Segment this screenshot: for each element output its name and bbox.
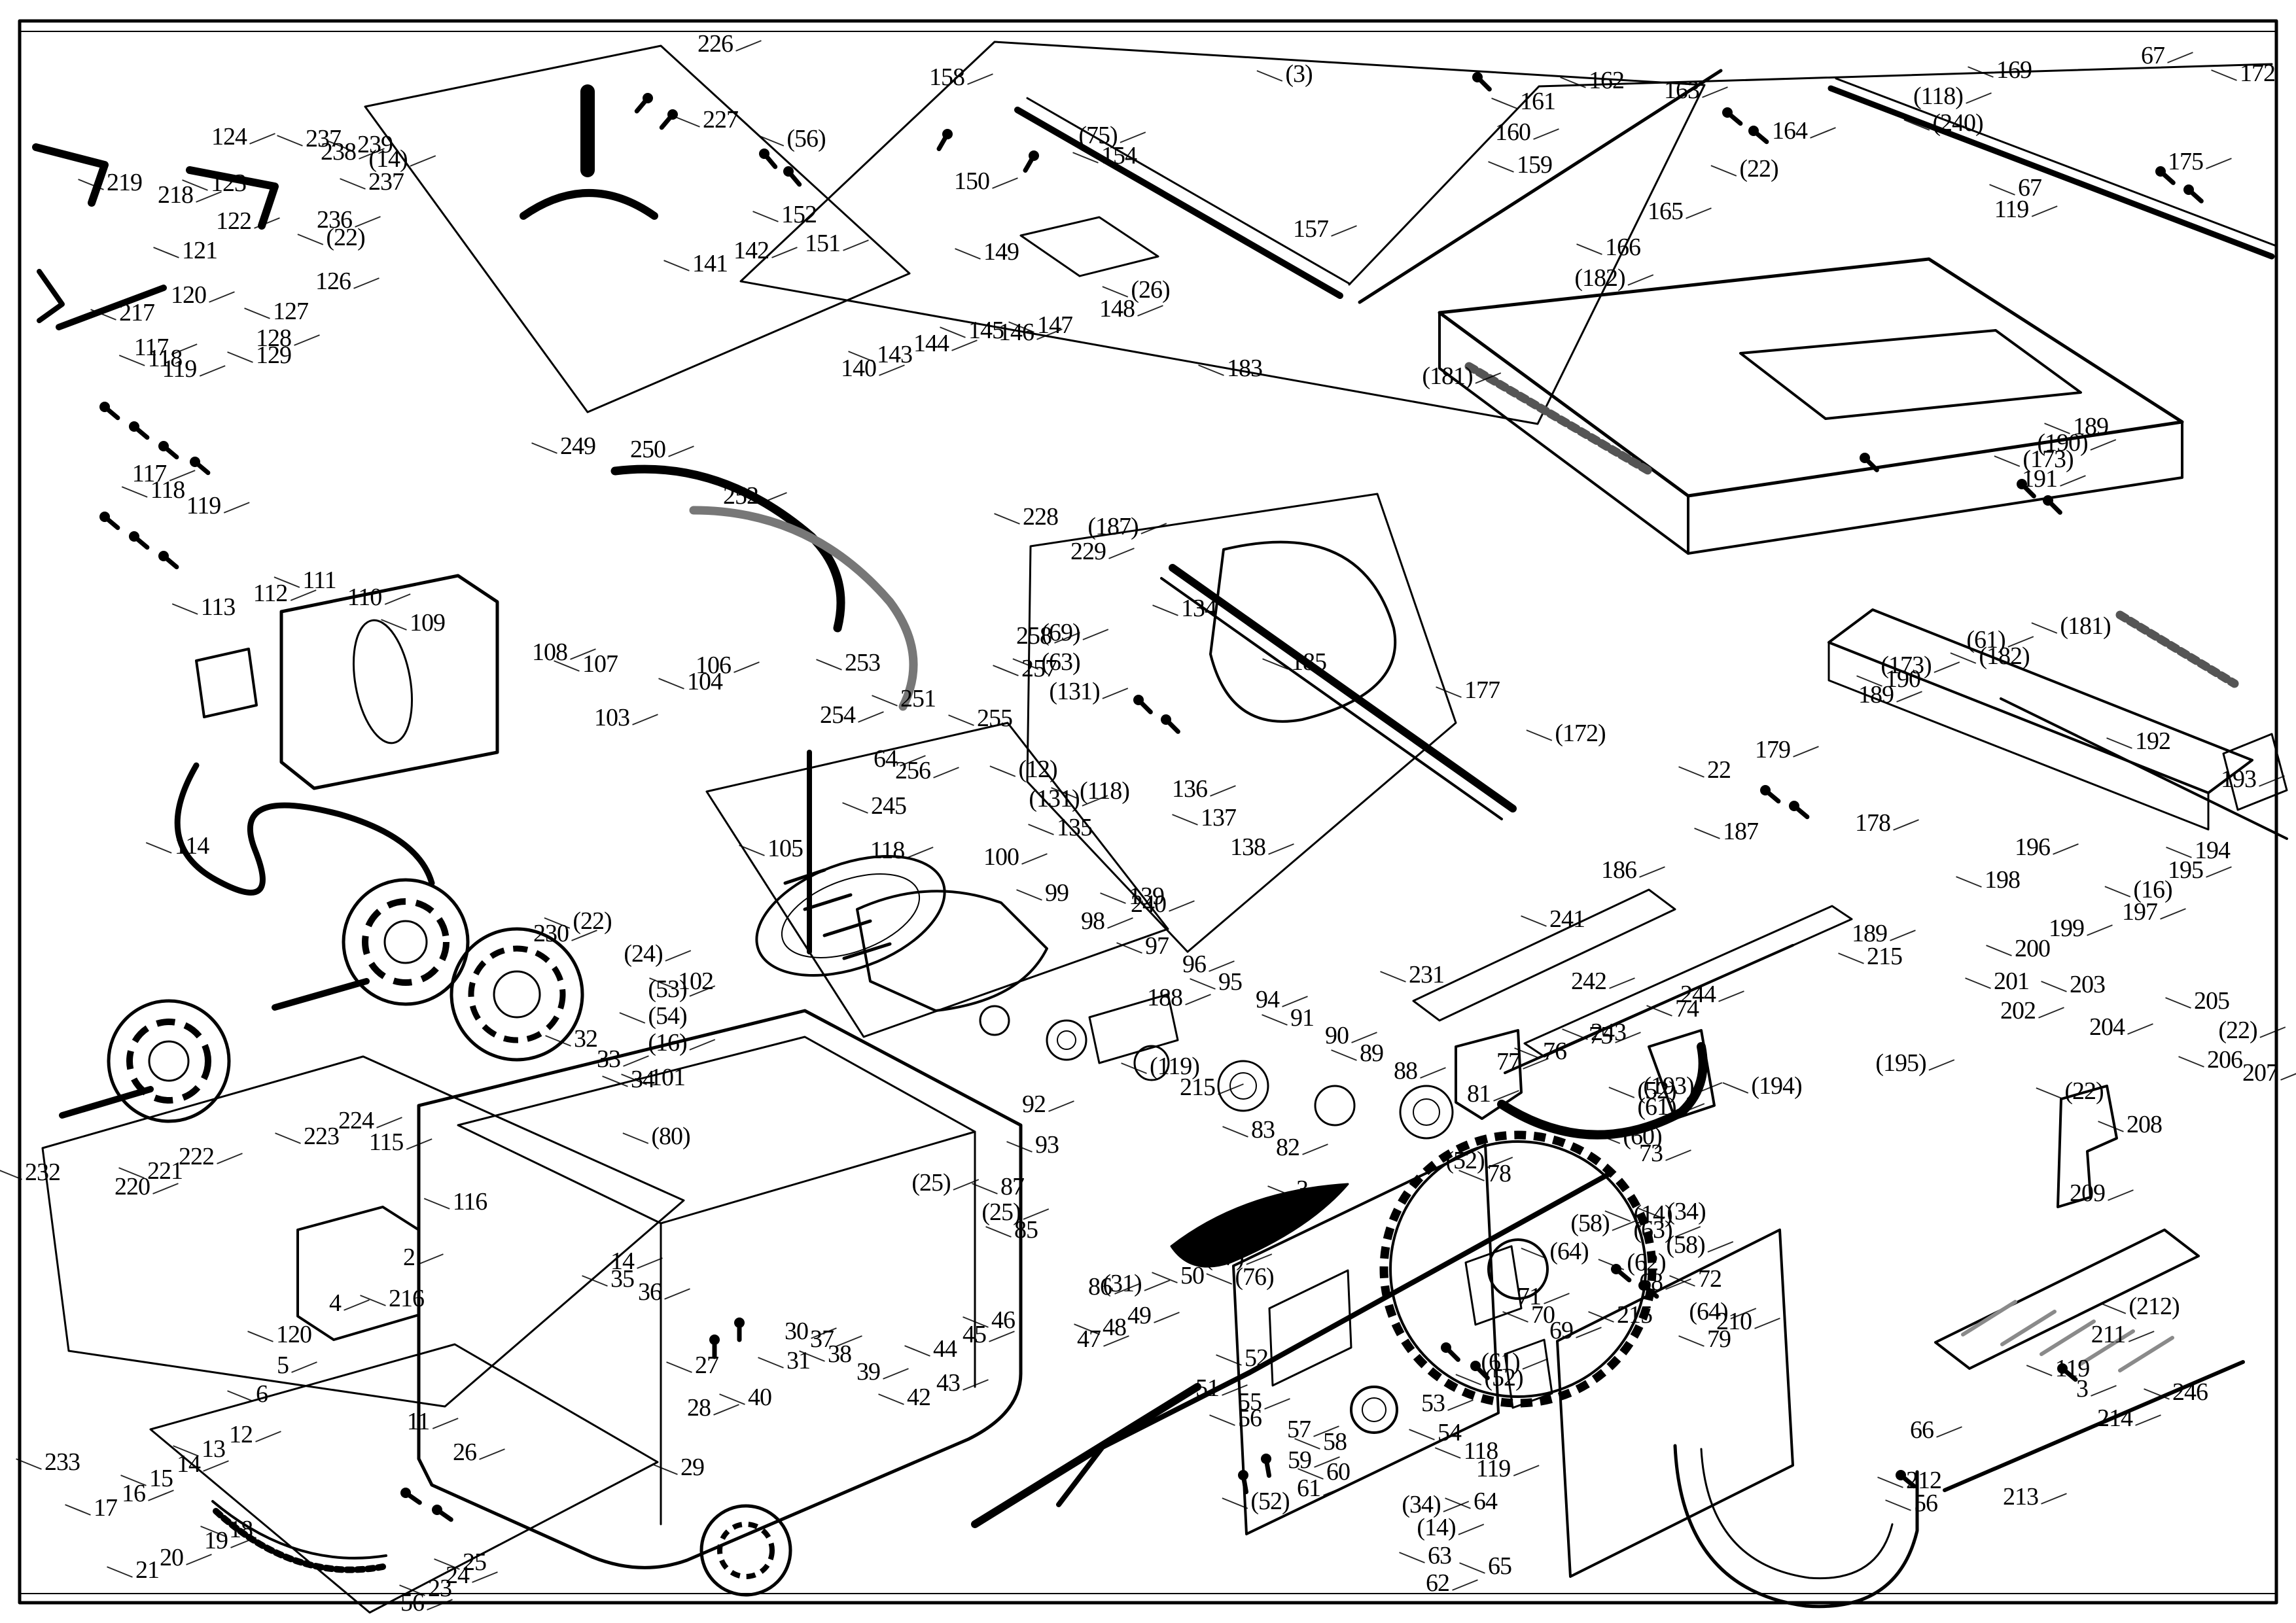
part-label-118: (118) <box>1913 84 1963 109</box>
figure-shape <box>150 1344 658 1613</box>
part-label-113: 113 <box>201 595 236 620</box>
part-label-251: 251 <box>900 686 936 711</box>
part-label-107: 107 <box>582 652 618 676</box>
part-label-175: 175 <box>2168 149 2203 174</box>
part-label-151: 151 <box>805 231 840 256</box>
part-label-2: 2 <box>403 1245 415 1270</box>
figure-shape <box>1047 1021 1086 1060</box>
part-label-63: 63 <box>1428 1543 1451 1568</box>
part-label-245: 245 <box>871 794 906 818</box>
part-label-221: 221 <box>147 1159 183 1183</box>
figure-shape <box>177 765 432 893</box>
part-label-16: 16 <box>122 1481 145 1506</box>
part-label-118: 118 <box>150 478 185 502</box>
part-label-54: 54 <box>1438 1420 1461 1445</box>
part-label-150: 150 <box>954 169 989 194</box>
part-label-39: 39 <box>857 1359 880 1384</box>
part-label-242: 242 <box>1571 969 1606 994</box>
part-label-182: (182) <box>1979 644 2029 669</box>
part-label-96: 96 <box>1182 952 1206 977</box>
part-label-14: (14) <box>1417 1515 1455 1540</box>
part-label-215: 215 <box>1180 1075 1215 1100</box>
part-label-215: 215 <box>1867 944 1902 969</box>
figure-shape <box>275 981 366 1007</box>
part-label-89: 89 <box>1360 1041 1383 1066</box>
part-label-65: 65 <box>1488 1554 1511 1579</box>
part-label-126: 126 <box>315 269 351 294</box>
part-label-64: (64) <box>1549 1239 1588 1264</box>
figure-shape <box>1029 150 1039 161</box>
part-label-95: 95 <box>1218 969 1242 994</box>
part-label-206: 206 <box>2207 1047 2242 1072</box>
figure-shape <box>1027 98 1350 284</box>
part-label-29: 29 <box>680 1455 704 1480</box>
part-label-195: (195) <box>1875 1051 1926 1075</box>
part-label-94: 94 <box>1256 987 1279 1012</box>
part-label-31: (31) <box>1103 1271 1141 1296</box>
part-label-188: 188 <box>1147 985 1182 1010</box>
part-label-194: (194) <box>1751 1073 1801 1098</box>
figure-shape <box>1896 1470 1906 1480</box>
part-label-112: 112 <box>253 581 288 606</box>
part-label-77: 77 <box>1496 1049 1520 1074</box>
part-label-131: (131) <box>1049 679 1099 704</box>
figure-shape <box>1057 1031 1076 1049</box>
part-label-229: 229 <box>1070 539 1106 564</box>
part-label-120: 120 <box>276 1322 311 1347</box>
part-label-212: (212) <box>2128 1294 2179 1319</box>
part-label-223: 223 <box>304 1124 339 1149</box>
part-label-54: (54) <box>648 1003 686 1028</box>
part-label-163: 163 <box>1664 78 1699 103</box>
part-label-228: 228 <box>1023 504 1058 529</box>
part-label-53: 53 <box>1421 1391 1445 1416</box>
part-label-233: 233 <box>44 1450 80 1475</box>
part-label-137: 137 <box>1201 805 1236 830</box>
part-label-3: 3 <box>1296 1177 1308 1202</box>
part-label-202: 202 <box>2000 998 2036 1023</box>
part-label-99: 99 <box>1045 881 1069 905</box>
part-label-177: 177 <box>1464 678 1500 703</box>
part-label-124: 124 <box>211 124 247 149</box>
part-label-13: 13 <box>202 1437 225 1461</box>
part-label-161: 161 <box>1520 89 1555 114</box>
part-label-172: 172 <box>2240 61 2275 86</box>
part-label-118: (118) <box>1080 778 1129 803</box>
part-label-48: 48 <box>1103 1315 1126 1340</box>
part-label-186: 186 <box>1601 858 1636 882</box>
figure-shape <box>1472 72 1483 82</box>
figure-shape <box>1218 1061 1268 1111</box>
part-label-178: 178 <box>1855 811 1890 835</box>
part-label-25: 25 <box>463 1550 486 1575</box>
part-label-154: 154 <box>1101 143 1137 168</box>
part-label-74: 74 <box>1675 996 1699 1021</box>
part-label-85: 85 <box>1014 1217 1038 1242</box>
part-label-31: 31 <box>786 1348 810 1373</box>
part-label-88: 88 <box>1394 1058 1417 1083</box>
part-label-226: 226 <box>698 31 733 56</box>
part-label-122: 122 <box>216 209 251 234</box>
part-label-219: 219 <box>107 170 142 195</box>
part-label-33: 33 <box>597 1047 620 1072</box>
part-label-28: 28 <box>687 1395 711 1420</box>
figure-shape <box>942 129 953 139</box>
part-label-22: (22) <box>1739 156 1778 181</box>
figure-shape <box>2155 166 2166 177</box>
part-label-46: 46 <box>991 1308 1015 1333</box>
figure-shape <box>1315 1086 1354 1125</box>
part-label-187: 187 <box>1723 819 1758 844</box>
figure-shape <box>432 1505 442 1515</box>
part-label-111: 111 <box>302 568 336 593</box>
part-label-67: 67 <box>2141 43 2164 68</box>
part-label-209: 209 <box>2070 1181 2105 1206</box>
part-label-109: 109 <box>410 610 445 635</box>
part-label-147: 147 <box>1037 313 1072 338</box>
part-label-12: 12 <box>229 1422 253 1447</box>
figure-shape <box>471 949 563 1040</box>
part-label-56: (56) <box>786 126 825 151</box>
part-label-44: 44 <box>933 1336 957 1361</box>
figure-shape <box>783 166 794 177</box>
part-label-227: 227 <box>703 107 738 132</box>
part-label-36: 36 <box>638 1280 662 1304</box>
part-label-53: (53) <box>648 977 686 1002</box>
part-label-22: (22) <box>573 909 611 934</box>
figure-shape <box>2043 495 2053 506</box>
part-label-204: 204 <box>2089 1015 2125 1039</box>
part-label-50: 50 <box>1180 1263 1204 1288</box>
part-label-193: 193 <box>2221 767 2256 792</box>
part-label-101: 101 <box>650 1065 685 1090</box>
part-label-81: 81 <box>1467 1081 1491 1106</box>
part-label-20: 20 <box>160 1545 183 1570</box>
part-label-152: 152 <box>781 202 817 227</box>
part-label-165: 165 <box>1648 199 1683 224</box>
figure-shape <box>190 457 200 467</box>
diagram-sheet: 219218217226227124123122121120237238239(… <box>0 0 2296 1623</box>
part-label-32: 32 <box>574 1026 597 1051</box>
figure-shape <box>36 147 105 203</box>
part-label-4: 4 <box>329 1291 341 1316</box>
part-label-63: (63) <box>1041 650 1080 674</box>
part-label-215: 215 <box>1617 1302 1652 1327</box>
part-label-120: 120 <box>171 283 206 307</box>
part-label-135: 135 <box>1057 815 1092 840</box>
part-label-49: 49 <box>1127 1303 1151 1328</box>
part-label-200: 200 <box>2015 936 2050 961</box>
part-label-127: 127 <box>273 299 308 324</box>
figure-shape <box>1413 890 1675 1021</box>
part-label-146: 146 <box>998 320 1034 345</box>
figure-shape <box>129 531 139 542</box>
part-label-83: 83 <box>1251 1117 1275 1142</box>
part-label-253: 253 <box>845 650 880 675</box>
figure-shape <box>1439 313 1688 553</box>
part-label-12: (12) <box>1018 757 1057 782</box>
figure-shape <box>365 901 446 983</box>
part-label-42: 42 <box>907 1385 930 1410</box>
part-label-97: 97 <box>1145 934 1169 958</box>
figure-shape <box>1740 330 2081 419</box>
part-label-123: 123 <box>211 171 246 196</box>
part-label-103: 103 <box>594 705 629 730</box>
part-label-197: 197 <box>2122 899 2157 924</box>
part-label-98: 98 <box>1081 909 1104 934</box>
part-label-27: 27 <box>695 1353 718 1378</box>
part-label-62: 62 <box>1426 1571 1449 1596</box>
part-label-220: 220 <box>115 1174 150 1199</box>
part-label-56: 56 <box>1914 1491 1937 1516</box>
part-label-172: (172) <box>1555 721 1605 746</box>
part-label-61: (61) <box>1637 1094 1676 1119</box>
part-label-5: 5 <box>277 1353 289 1378</box>
part-label-64: 64 <box>874 746 897 771</box>
part-label-159: 159 <box>1517 152 1552 177</box>
part-label-91: 91 <box>1290 1005 1314 1030</box>
part-label-216: 216 <box>389 1286 424 1311</box>
figure-shape <box>523 193 654 216</box>
figure-shape <box>129 421 139 432</box>
part-label-66: 66 <box>1910 1418 1934 1442</box>
figure-shape <box>298 1207 419 1340</box>
part-label-40: 40 <box>748 1385 771 1410</box>
part-label-69: (69) <box>1041 620 1080 645</box>
part-label-79: 79 <box>1707 1327 1731 1352</box>
part-label-148: 148 <box>1099 296 1135 321</box>
part-label-157: 157 <box>1293 217 1328 241</box>
figure-shape <box>1133 695 1144 705</box>
figure-shape <box>99 402 110 412</box>
part-label-60: 60 <box>1326 1459 1350 1484</box>
figure-shape <box>1675 1446 1917 1607</box>
part-label-217: 217 <box>119 300 154 325</box>
figure-shape <box>385 921 427 963</box>
part-label-52: (52) <box>1250 1489 1289 1514</box>
part-label-75: 75 <box>1589 1023 1612 1048</box>
part-label-69: 69 <box>1549 1318 1573 1343</box>
figure-shape <box>365 46 910 412</box>
figure-shape <box>419 1011 1021 1567</box>
part-label-201: 201 <box>1994 969 2029 994</box>
part-label-181: (181) <box>1422 364 1472 389</box>
part-label-187: (187) <box>1087 514 1138 539</box>
part-label-164: 164 <box>1772 118 1807 143</box>
figure-shape <box>158 441 169 451</box>
figure-shape <box>1470 1361 1481 1371</box>
part-label-68: 68 <box>1639 1270 1663 1295</box>
part-label-72: 72 <box>1698 1266 1722 1291</box>
part-label-162: 162 <box>1589 68 1624 93</box>
part-label-114: 114 <box>175 833 209 858</box>
part-label-56: 56 <box>400 1590 424 1615</box>
part-label-222: 222 <box>179 1144 214 1169</box>
part-label-34: 34 <box>631 1067 654 1092</box>
part-label-110: 110 <box>347 585 382 610</box>
part-label-191: 191 <box>2022 466 2057 491</box>
figure-shape <box>1557 1230 1793 1577</box>
part-label-115: 115 <box>369 1130 404 1155</box>
figure-shape <box>1017 110 1340 296</box>
figure-shape <box>1362 1398 1386 1422</box>
part-label-185: 185 <box>1291 650 1326 674</box>
part-label-35: 35 <box>610 1266 634 1291</box>
part-label-82: 82 <box>1276 1135 1299 1160</box>
part-label-26: 26 <box>453 1440 476 1465</box>
figure-shape <box>980 1006 1009 1035</box>
part-label-43: 43 <box>936 1370 960 1395</box>
figure-shape <box>701 1506 790 1595</box>
part-label-207: 207 <box>2242 1060 2278 1085</box>
part-label-118: 118 <box>870 838 905 863</box>
part-label-61: 61 <box>1297 1476 1320 1501</box>
part-label-16: (16) <box>648 1030 686 1055</box>
figure-shape <box>1836 79 2276 246</box>
part-label-100: 100 <box>983 845 1019 869</box>
figure-shape <box>857 891 1047 1011</box>
part-label-25: (25) <box>911 1170 950 1195</box>
figure-shape <box>1748 126 1759 136</box>
part-label-58: 58 <box>1323 1429 1347 1454</box>
part-label-22: (22) <box>2218 1018 2257 1043</box>
figure-shape <box>158 551 169 561</box>
part-label-64: 64 <box>1474 1489 1497 1514</box>
part-label-182: (182) <box>1574 266 1625 290</box>
part-label-149: 149 <box>983 239 1019 264</box>
part-label-119: 119 <box>1994 197 2029 222</box>
part-label-52: (52) <box>1484 1365 1523 1390</box>
figure-shape <box>281 576 497 788</box>
part-label-106: 106 <box>696 653 731 678</box>
part-label-252: 252 <box>723 483 758 508</box>
part-label-213: 213 <box>2003 1484 2038 1509</box>
part-label-250: 250 <box>630 437 665 462</box>
figure-shape <box>643 93 653 103</box>
part-label-134: 134 <box>1181 596 1216 621</box>
figure-shape <box>707 723 1168 1037</box>
part-label-256: 256 <box>895 758 930 783</box>
part-label-38: 38 <box>828 1342 851 1367</box>
part-label-11: 11 <box>407 1409 430 1434</box>
figure-shape <box>196 649 256 717</box>
part-label-203: 203 <box>2070 972 2105 997</box>
part-label-121: 121 <box>182 238 217 263</box>
part-label-3: 3 <box>2076 1376 2088 1401</box>
part-label-214: 214 <box>2097 1406 2132 1431</box>
part-label-22: 22 <box>1707 758 1731 782</box>
figure-shape <box>759 148 769 159</box>
part-label-51: 51 <box>1195 1376 1219 1401</box>
part-label-3: (3) <box>1285 61 1312 86</box>
part-label-169: 169 <box>1996 58 2032 82</box>
part-label-63: (63) <box>1633 1217 1672 1242</box>
part-label-58: (58) <box>1570 1211 1609 1236</box>
part-label-158: 158 <box>929 65 964 90</box>
figure-shape <box>1789 801 1799 811</box>
figure-shape <box>709 1335 720 1345</box>
part-label-108: 108 <box>532 640 567 665</box>
part-label-22: (22) <box>2064 1079 2103 1104</box>
figure-shape <box>1722 107 1733 118</box>
part-label-24: (24) <box>624 941 662 966</box>
part-label-211: 211 <box>2091 1322 2126 1347</box>
figure-shape <box>720 1524 772 1577</box>
figure-shape <box>458 1037 975 1223</box>
part-label-93: 93 <box>1035 1132 1059 1157</box>
figure-shape <box>1261 1454 1271 1464</box>
part-label-218: 218 <box>158 183 193 207</box>
part-label-208: 208 <box>2127 1112 2162 1137</box>
part-label-240: (240) <box>1932 111 1983 135</box>
part-label-52: (52) <box>1445 1148 1484 1173</box>
part-label-34: (34) <box>1402 1492 1440 1517</box>
part-label-189: 189 <box>1852 921 1887 946</box>
figure-shape <box>494 971 540 1017</box>
figure-shape <box>39 271 62 321</box>
part-label-22: (22) <box>326 225 364 250</box>
part-label-238: 238 <box>321 139 356 164</box>
part-label-199: 199 <box>2049 916 2084 941</box>
part-label-198: 198 <box>1985 867 2020 892</box>
part-label-141: 141 <box>692 251 728 276</box>
part-label-18: 18 <box>229 1517 253 1542</box>
part-label-142: 142 <box>733 238 769 263</box>
part-label-56: 56 <box>1238 1406 1262 1431</box>
figure-shape <box>2183 184 2194 195</box>
part-label-196: 196 <box>2015 835 2050 860</box>
part-label-237: 237 <box>368 169 404 194</box>
part-label-166: 166 <box>1605 235 1640 260</box>
part-label-119: 119 <box>186 493 221 518</box>
figure-shape <box>1441 1342 1451 1353</box>
part-label-129: 129 <box>256 343 291 368</box>
part-label-179: 179 <box>1755 737 1790 762</box>
part-label-131: (131) <box>1029 786 1079 811</box>
part-label-73: 73 <box>1639 1141 1663 1166</box>
part-label-231: 231 <box>1409 962 1444 987</box>
part-label-254: 254 <box>820 703 855 727</box>
part-label-15: 15 <box>149 1466 173 1491</box>
part-label-87: 87 <box>1000 1174 1024 1199</box>
part-label-192: 192 <box>2135 729 2170 754</box>
figure-shape <box>400 1488 411 1498</box>
part-label-17: 17 <box>94 1495 117 1520</box>
part-label-52: 52 <box>1245 1346 1268 1370</box>
figure-shape <box>1269 1270 1351 1386</box>
figure-shape <box>1161 714 1171 725</box>
figure-shape <box>1021 217 1158 276</box>
part-label-246: 246 <box>2172 1380 2208 1405</box>
part-label-255: 255 <box>977 706 1012 731</box>
part-label-143: 143 <box>877 342 912 367</box>
figure-shape <box>1860 453 1870 463</box>
part-label-249: 249 <box>560 434 595 459</box>
part-label-160: 160 <box>1495 120 1530 145</box>
figure-shape <box>1701 1449 1892 1579</box>
part-label-90: 90 <box>1325 1023 1349 1048</box>
part-label-232: 232 <box>25 1160 60 1185</box>
figure-shape <box>1413 1099 1439 1125</box>
part-label-34: (34) <box>1667 1199 1705 1224</box>
part-label-26: (26) <box>1131 277 1169 302</box>
part-label-14: 14 <box>177 1452 200 1476</box>
part-label-21: 21 <box>135 1558 159 1582</box>
part-label-105: 105 <box>768 836 803 861</box>
part-label-30: 30 <box>785 1319 808 1344</box>
part-label-116: 116 <box>453 1189 487 1214</box>
figure-shape <box>1831 88 2272 256</box>
